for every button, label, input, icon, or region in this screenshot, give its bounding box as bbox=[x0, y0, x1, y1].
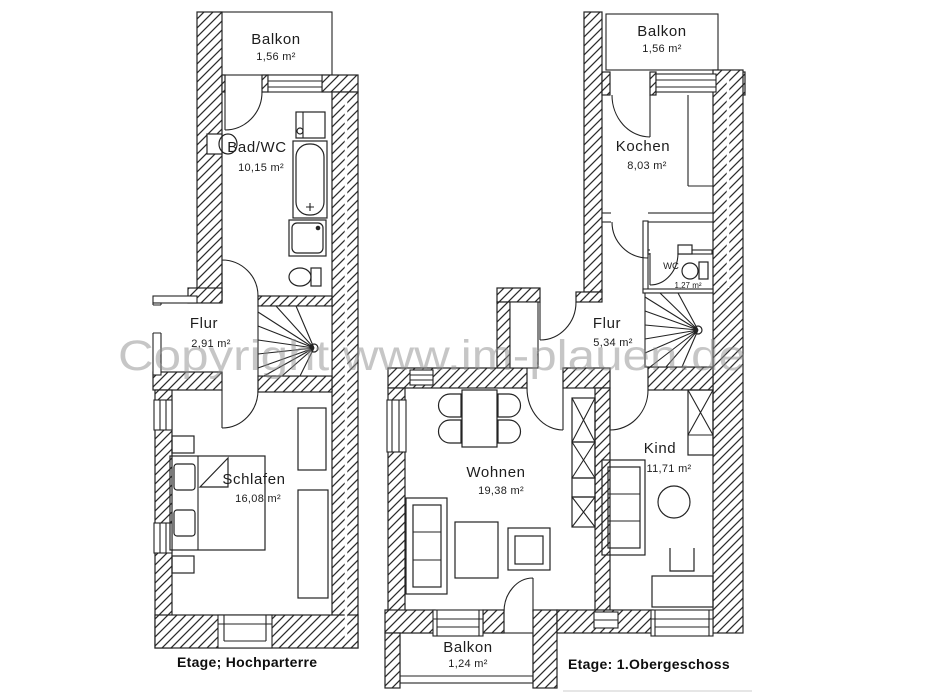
wall-segment bbox=[222, 75, 225, 92]
door-opening bbox=[151, 305, 163, 333]
floorplan-canvas: Balkon 1,56 m² Bad/WC 10,15 m² Flur 2,91… bbox=[0, 0, 933, 700]
toilet-cistern bbox=[699, 262, 708, 279]
door-arc bbox=[222, 390, 258, 428]
room-label-kind: Kind bbox=[644, 440, 676, 457]
door-arc bbox=[222, 260, 258, 296]
wall-segment bbox=[385, 610, 435, 633]
window bbox=[154, 400, 172, 430]
door-arc bbox=[527, 388, 563, 430]
room-area-wohnen: 19,38 m² bbox=[478, 485, 524, 497]
pillow bbox=[174, 510, 195, 536]
side-table-top bbox=[515, 536, 543, 564]
room-area-bad-wc: 10,15 m² bbox=[238, 162, 284, 174]
room-area-balkon: 1,56 m² bbox=[256, 51, 295, 63]
shaft-x bbox=[572, 442, 595, 478]
caption-hochparterre: Etage; Hochparterre bbox=[177, 654, 317, 670]
wardrobe bbox=[298, 490, 328, 598]
window bbox=[268, 75, 322, 92]
room-label-wohnen: Wohnen bbox=[466, 464, 525, 481]
bathtub-drain bbox=[306, 203, 314, 211]
room-label-flur: Flur bbox=[190, 315, 218, 332]
kitchen-counter bbox=[688, 95, 713, 186]
floorplan-page: Balkon 1,56 m² Bad/WC 10,15 m² Flur 2,91… bbox=[0, 0, 933, 700]
wall-segment bbox=[602, 72, 610, 95]
wall-segment bbox=[262, 75, 268, 92]
room-area-kind: 11,71 m² bbox=[647, 463, 692, 475]
dining-chair bbox=[498, 420, 521, 443]
room-area-balkon-unten: 1,24 m² bbox=[448, 658, 487, 670]
wall-segment bbox=[650, 72, 656, 95]
pillow bbox=[174, 464, 195, 490]
shaft-box bbox=[572, 478, 595, 497]
room-label-kochen: Kochen bbox=[616, 138, 670, 155]
wall-segment bbox=[322, 75, 358, 92]
room-area-schlafen: 16,08 m² bbox=[235, 493, 281, 505]
room-area-kochen: 8,03 m² bbox=[627, 160, 666, 172]
window-bay bbox=[651, 610, 713, 636]
wall-segment bbox=[258, 296, 332, 306]
coffee-table bbox=[455, 522, 498, 578]
dining-chair bbox=[439, 420, 462, 443]
door-arc bbox=[504, 578, 533, 612]
cushion-divider bbox=[608, 494, 640, 521]
kids-bed-cushions bbox=[608, 467, 640, 548]
dining-chair bbox=[439, 394, 462, 417]
window bbox=[656, 74, 716, 92]
room-label-schlafen: Schlafen bbox=[222, 471, 285, 488]
room-area-wc: 1,27 m² bbox=[674, 281, 701, 290]
shaft-x bbox=[572, 497, 595, 527]
sofa-cushions bbox=[413, 505, 441, 587]
washing-machine-door bbox=[297, 128, 303, 134]
shaft-x bbox=[572, 398, 595, 442]
door-arc bbox=[225, 92, 262, 130]
thin-wall bbox=[153, 296, 197, 303]
room-label-balkon: Balkon bbox=[251, 31, 300, 48]
door-arc bbox=[612, 95, 650, 137]
desk-chair bbox=[670, 548, 694, 571]
chimney-shaft bbox=[572, 398, 595, 527]
wc-washbasin bbox=[678, 245, 692, 254]
shower-tray bbox=[289, 220, 326, 256]
room-label-wc: WC bbox=[663, 261, 679, 272]
watermark-text: Copyright www.im-plauen.de bbox=[118, 332, 746, 380]
nightstand bbox=[172, 436, 194, 453]
round-table bbox=[658, 486, 690, 518]
window-bay bbox=[218, 615, 272, 648]
dining-table bbox=[462, 390, 497, 447]
toilet bbox=[289, 268, 311, 286]
toilet bbox=[682, 263, 698, 279]
window bbox=[154, 523, 172, 553]
wall-segment bbox=[483, 610, 504, 633]
kids-room-furniture bbox=[602, 390, 713, 607]
room-label-flur-og: Flur bbox=[593, 315, 621, 332]
wardrobe-x bbox=[688, 390, 713, 435]
wall-segment bbox=[497, 288, 540, 302]
wall-segment bbox=[385, 633, 400, 688]
room-area-balkon-oben: 1,56 m² bbox=[642, 43, 681, 55]
room-label-balkon-unten: Balkon bbox=[443, 639, 492, 656]
wall-segment bbox=[584, 12, 602, 292]
room-label-bad-wc: Bad/WC bbox=[227, 139, 286, 156]
wardrobe bbox=[298, 408, 326, 470]
window-bay bbox=[433, 610, 483, 636]
wardrobe bbox=[688, 390, 713, 455]
dining-chair bbox=[498, 394, 521, 417]
door-arc bbox=[610, 390, 648, 430]
wc-wall bbox=[643, 221, 648, 293]
room-label-balkon-oben: Balkon bbox=[637, 23, 686, 40]
wall-segment bbox=[197, 12, 222, 302]
door-opening bbox=[650, 249, 678, 255]
sofa-cushion-divider bbox=[413, 532, 441, 560]
desk bbox=[652, 576, 713, 607]
wall-segment bbox=[576, 292, 602, 302]
wall-segment bbox=[533, 610, 557, 688]
caption-obergeschoss: Etage: 1.Obergeschoss bbox=[568, 656, 730, 672]
window bbox=[387, 400, 406, 452]
shower-drain bbox=[316, 226, 321, 231]
nightstand bbox=[172, 556, 194, 573]
washbasin-mount bbox=[207, 134, 222, 154]
toilet-cistern bbox=[311, 268, 321, 286]
